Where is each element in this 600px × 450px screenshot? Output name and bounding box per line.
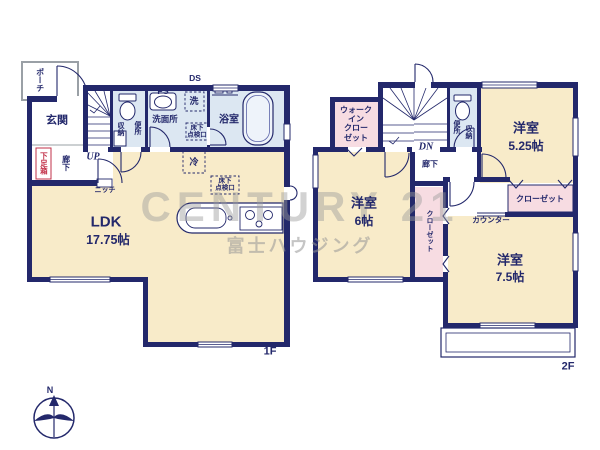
room-525-size: 5.25帖 <box>508 140 543 154</box>
floor1-tag: 1F <box>264 346 277 359</box>
storage-2f-label: 収納 <box>464 125 472 139</box>
floor2-tag: 2F <box>562 361 575 374</box>
bathroom-label: 浴室 <box>219 114 239 126</box>
walk-in-closet-label: ウォーク イン クロー ゼット <box>340 106 372 143</box>
closet-525-label: クローゼット <box>516 194 564 203</box>
toilet-fixture-2f <box>454 95 471 120</box>
room-75-size: 7.5帖 <box>496 271 525 285</box>
stove-icon <box>240 207 282 230</box>
niche-box <box>97 179 112 187</box>
pipe-space-label: PS <box>157 87 168 97</box>
washroom-label: 洗面所 <box>152 115 178 125</box>
floor-hatch-1-label: 床下 点検口 <box>187 125 207 140</box>
back-door-arc <box>290 186 297 200</box>
stairs-2f <box>383 88 447 144</box>
duct-space-label: DS <box>189 74 201 84</box>
room-75-name: 洋室 <box>497 254 523 269</box>
compass-icon <box>34 395 74 438</box>
ldk-name-label: LDK <box>91 213 122 230</box>
ldk-size-label: 17.75帖 <box>86 233 130 247</box>
shoe-box-label: 下足箱 <box>39 152 48 175</box>
room-6-name: 洋室 <box>351 197 377 212</box>
washer-label: 洗 <box>189 96 198 106</box>
counter-label: カウンター <box>472 217 510 226</box>
fridge-label: 冷 <box>189 157 198 167</box>
room-525-name: 洋室 <box>513 122 539 137</box>
stairs-down-label: DN <box>419 141 433 153</box>
bathtub-icon <box>243 92 273 145</box>
toilet-1f-label: 便所 <box>133 121 141 135</box>
floor-hatch-2-label: 床下 点検口 <box>215 178 235 193</box>
hallway-1f-label: 廊下 <box>61 155 70 171</box>
closet-strip-label: クローゼット <box>425 210 433 252</box>
porch-label: ポーチ <box>35 68 44 92</box>
kitchen-counter <box>177 203 283 233</box>
floorplan-canvas: CENTURY 21 富士ハウジング ポーチ 玄関 下足箱 廊下 UP 収納 便… <box>0 0 600 450</box>
toilet-2f-label: 便所 <box>452 120 460 134</box>
hallway-2f-label: 廊下 <box>422 159 438 168</box>
balcony <box>441 328 575 357</box>
stairs-up-label: UP <box>86 151 99 163</box>
compass-north-label: N <box>47 385 54 395</box>
stairs-1f <box>86 91 110 145</box>
kitchen-sink-icon <box>186 208 226 228</box>
room-6-size: 6帖 <box>355 215 374 229</box>
entrance-label: 玄関 <box>46 115 68 128</box>
floor1-plan <box>22 62 297 347</box>
niche-label: ニッチ <box>95 187 116 195</box>
storage-1f-label: 収納 <box>116 122 124 136</box>
porch-area <box>22 62 78 100</box>
